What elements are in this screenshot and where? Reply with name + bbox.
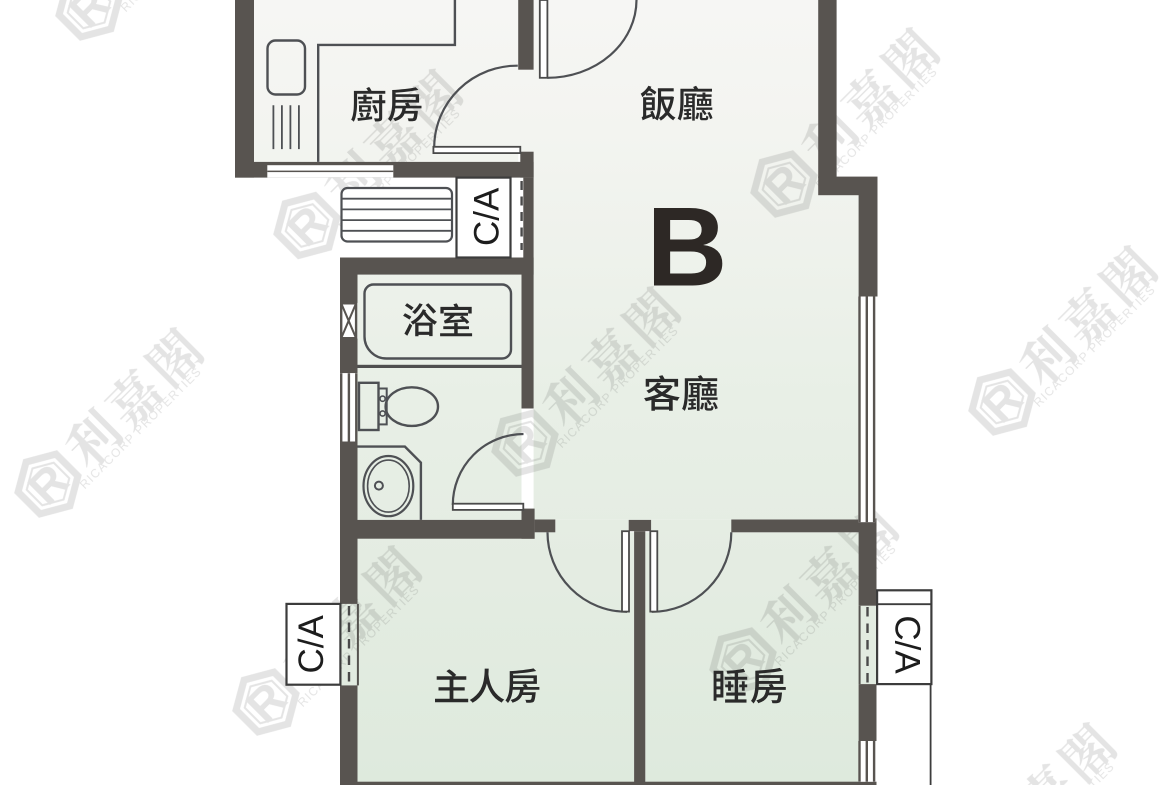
svg-text:C/A: C/A xyxy=(887,615,926,674)
svg-text:B: B xyxy=(647,185,728,310)
svg-text:C/A: C/A xyxy=(467,187,506,246)
svg-text:C/A: C/A xyxy=(292,614,331,673)
